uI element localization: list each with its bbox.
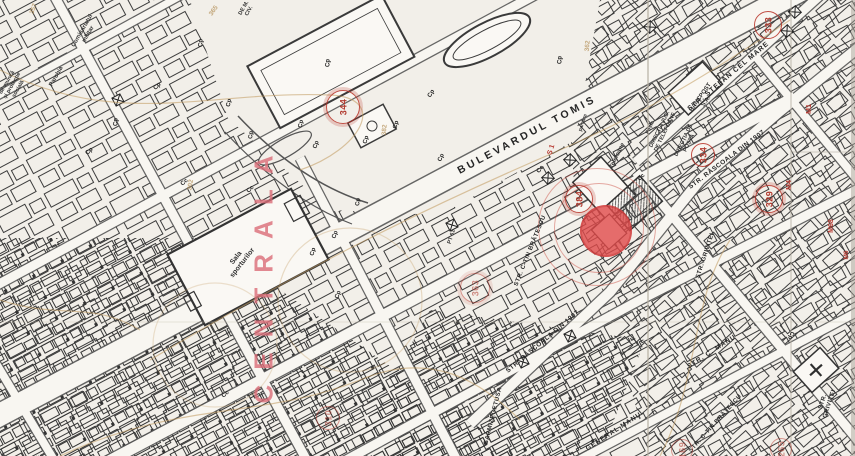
map-linework [0,0,855,456]
cadastral-map: BULEVARDUL TOMISSTR. ȘTEFAN CEL MARESTR.… [0,0,855,456]
location-highlight-dot[interactable] [580,205,632,257]
